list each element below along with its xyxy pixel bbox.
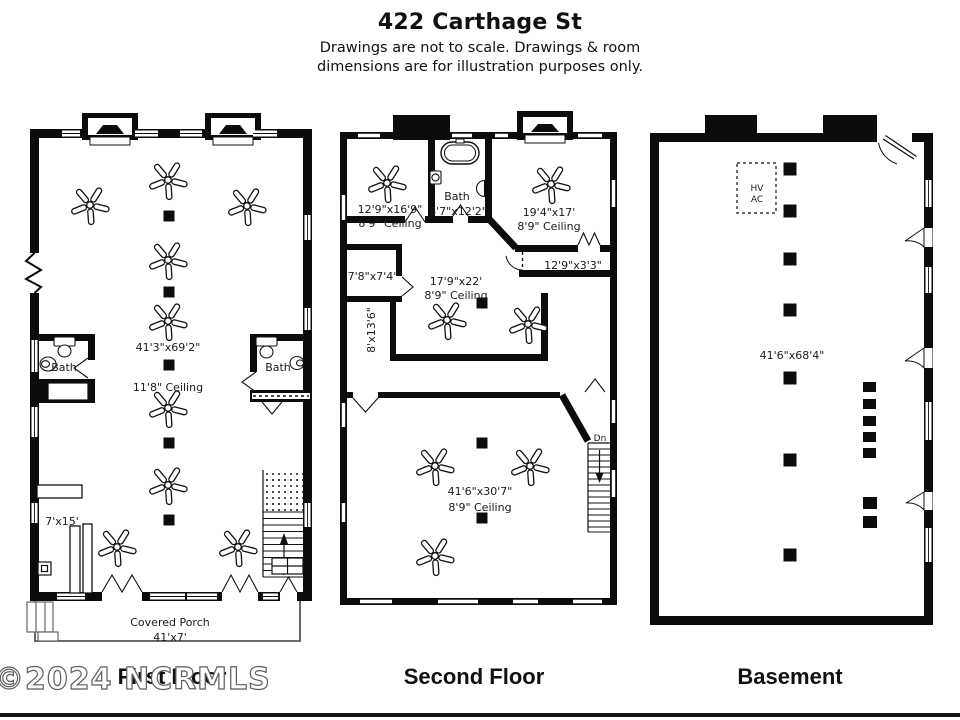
vanity-counter	[48, 383, 88, 400]
cabinet	[272, 558, 303, 574]
toilet-icon	[256, 337, 277, 358]
hearth	[525, 135, 565, 143]
floor-plan-page: { "header": { "title": "422 Carthage St"…	[0, 0, 960, 720]
wall-break-zigzag	[26, 253, 41, 293]
hvac-label: HV	[751, 184, 765, 194]
ceiling-fan-icon	[149, 303, 188, 341]
room-dimension-label: 17'9"x22'	[430, 275, 483, 288]
room-dimension-label: 41'6"x30'7"	[448, 485, 513, 498]
sink-icon	[477, 181, 485, 197]
room-dimension-label: 7'8"x7'4"	[348, 270, 399, 283]
wall-segment	[489, 219, 516, 248]
second-floor-plan: 12'9"x16'9" 8'9" Ceiling Bath 8'7"x12'2"…	[340, 111, 617, 605]
door-swing-icon	[102, 575, 297, 592]
ceiling-fan-icon	[368, 165, 407, 203]
watermark: ©2024 NCRMLS	[0, 662, 271, 697]
support-posts	[863, 382, 877, 528]
room-dimension-label: 8'7"x12'2"	[429, 205, 487, 218]
toilet-icon	[430, 171, 441, 184]
stairs-down-label: Dn	[594, 434, 607, 444]
ceiling-fan-icon	[532, 166, 571, 204]
bottom-border-line	[0, 713, 960, 717]
room-dimension-label: 12'9"x16'9"	[358, 203, 423, 216]
support-columns	[784, 163, 797, 562]
bath-label: Bath	[265, 361, 291, 374]
corner-door	[879, 136, 917, 165]
room-dimension-label: 41'3"x69'2"	[136, 341, 201, 354]
room-dimension-label: 12'9"x3'3"	[544, 259, 602, 272]
ceiling-fan-icon	[228, 188, 267, 226]
hvac-label: AC	[751, 195, 763, 205]
staircase	[588, 443, 610, 532]
ceiling-fan-icon	[428, 302, 467, 340]
ceiling-height-label: 8'9" Ceiling	[517, 220, 580, 233]
ceiling-fan-icon	[149, 390, 188, 428]
bath-label: Bath	[444, 190, 470, 203]
room-dimension-label: 19'4"x17'	[523, 206, 576, 219]
hearth	[90, 137, 130, 145]
utility-fixture	[38, 562, 51, 575]
basement-plan: HV AC 41'6"x68'4"	[650, 115, 933, 625]
ceiling-fan-icon	[416, 538, 455, 576]
caption-second-floor: Second Floor	[404, 664, 545, 690]
porch-steps	[27, 602, 58, 641]
ceiling-height-label: 8'9" Ceiling	[358, 217, 421, 230]
room-dimension-label: 7'x15'	[45, 515, 79, 528]
stair-upper-dotted	[266, 474, 303, 510]
hearth	[213, 137, 253, 145]
bar-counter	[37, 485, 92, 593]
ceiling-fan-icon	[149, 242, 188, 280]
room-dimension-label: 41'6"x68'4"	[760, 349, 825, 362]
floor-plan-drawing: 41'3"x69'2" 11'8" Ceiling Bath Bath 7'x1…	[0, 0, 960, 720]
ceiling-fan-icon	[149, 162, 188, 200]
room-dimension-label: 8'x13'6"	[365, 307, 378, 353]
porch-label: Covered Porch	[130, 616, 210, 629]
wall-segment	[562, 395, 588, 441]
toilet-icon	[54, 337, 75, 357]
bath-label: Bath	[51, 361, 77, 374]
ceiling-fan-icon	[149, 467, 188, 505]
bathtub-icon	[441, 139, 479, 164]
door-swing-icon	[905, 228, 924, 510]
sink-icon	[290, 357, 304, 370]
first-floor-plan: 41'3"x69'2" 11'8" Ceiling Bath Bath 7'x1…	[26, 113, 312, 644]
ceiling-height-label: 8'9" Ceiling	[448, 501, 511, 514]
ceiling-height-label: 8'9" Ceiling	[424, 289, 487, 302]
ceiling-fan-icon	[71, 187, 110, 225]
ceiling-fan-icon	[416, 448, 455, 486]
ceiling-height-label: 11'8" Ceiling	[133, 381, 203, 394]
caption-basement: Basement	[737, 664, 842, 690]
ceiling-fan-icon	[98, 529, 137, 567]
ceiling-fan-icon	[219, 529, 258, 567]
door-swing-icon	[506, 256, 523, 270]
ceiling-fan-icon	[511, 448, 550, 486]
porch-dimension-label: 41'x7'	[153, 631, 187, 644]
